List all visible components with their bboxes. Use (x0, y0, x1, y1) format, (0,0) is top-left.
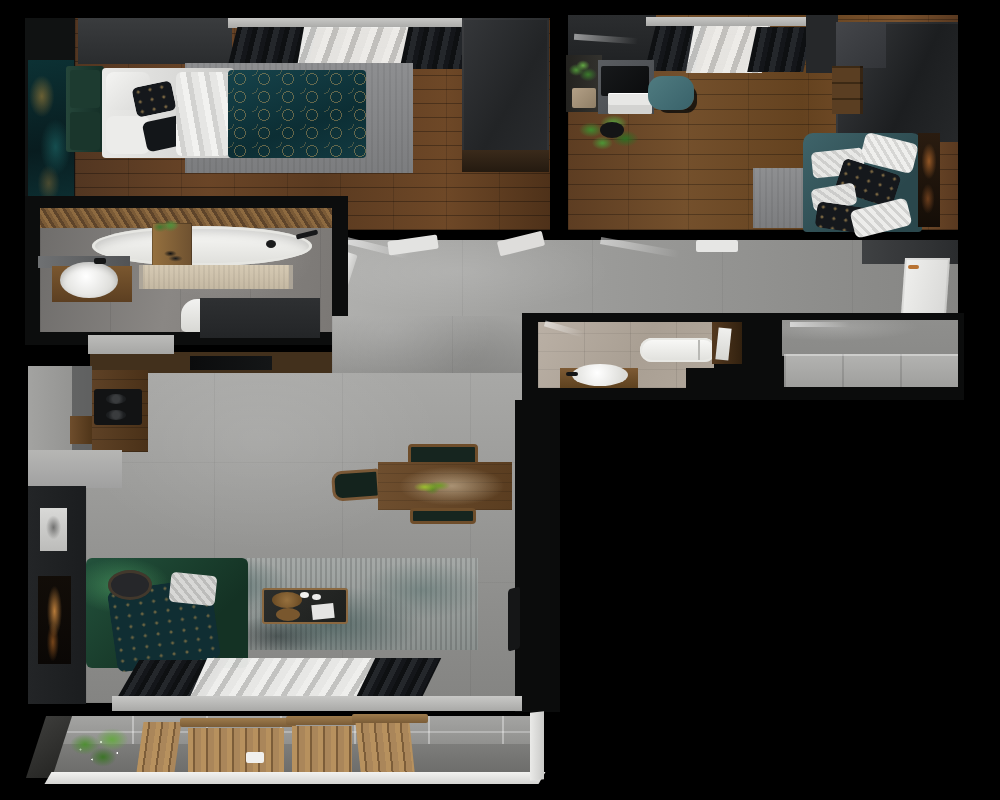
coffee-table-tray-2 (276, 608, 300, 621)
kitchen-slab-top (88, 335, 174, 354)
bedroom-wardrobe (462, 18, 549, 172)
bed-headboard-cushion (70, 70, 100, 108)
office-storage-box (572, 88, 596, 108)
office-curtain-right (747, 27, 813, 72)
office-right-wall (806, 15, 838, 73)
living-sheer-curtain (189, 658, 378, 700)
office-plant-pot (600, 122, 624, 138)
coffee-table-tray-1 (272, 592, 302, 608)
dining-chair-left (331, 468, 381, 501)
living-right-wall-object (508, 586, 520, 651)
office-wall-art-copper (918, 133, 940, 227)
bed-folded-duvet (176, 72, 230, 156)
balcony-table (188, 728, 284, 772)
sofa-pillow-light (169, 572, 218, 607)
office-wardrobe-panel (836, 22, 886, 68)
balcony-railing (45, 772, 546, 784)
bath-caddy-items (160, 248, 186, 262)
coffee-table-cups (300, 592, 309, 598)
living-fireplace-art (38, 576, 71, 664)
balcony-railing-right (530, 711, 544, 780)
entry-door-handle (908, 265, 919, 269)
balcony-chair-left (136, 722, 181, 772)
living-window-sill (112, 696, 522, 711)
living-wall-art-white (40, 508, 67, 551)
bathroom-2-dark-corner (686, 368, 716, 388)
kitchen-burner-1 (106, 394, 126, 404)
vanity-sink (60, 262, 118, 298)
kitchen-wood-shelf (70, 416, 92, 444)
tv-screen (190, 356, 272, 370)
coffee-table-book (311, 603, 334, 620)
dining-table-plant (408, 474, 456, 500)
bathroom-runner-rug (143, 265, 289, 289)
balcony-chair-right-top (352, 714, 428, 723)
storage-cabinets (784, 354, 958, 387)
bedroom-top-wall (78, 18, 232, 64)
balcony-table-top (180, 718, 296, 727)
kitchen-burner-2 (106, 410, 126, 420)
balcony-chair-mid (292, 726, 352, 772)
office-drawer-chest (832, 66, 863, 114)
office-door-threshold (696, 240, 738, 252)
vanity-faucet (94, 258, 106, 264)
balcony-plants (58, 722, 148, 772)
bed-teal-duvet (228, 70, 366, 158)
balcony-chair-right (355, 722, 414, 772)
office-shelf-plant (566, 58, 600, 88)
floor-plan-canvas (0, 0, 1000, 800)
bathtub-drain (266, 240, 276, 248)
media-wall-upper (200, 298, 320, 338)
office-laptop (601, 66, 649, 96)
bathroom-2-sink (572, 364, 628, 386)
office-chair (648, 76, 694, 110)
kitchen-slab-bottom (28, 450, 122, 488)
floor-lamp-shade (108, 570, 152, 600)
dining-chair-bottom (410, 508, 476, 524)
bathroom-2-faucet (566, 372, 578, 376)
balcony-cup (246, 752, 264, 763)
storage-light (790, 322, 850, 327)
bedroom-wardrobe-base (462, 150, 549, 172)
bathtub-2-divider (698, 340, 700, 360)
living-floor-upper (332, 316, 522, 378)
office-window-sill (646, 17, 808, 26)
bathtub-2 (640, 338, 716, 362)
living-right-wall (515, 400, 560, 712)
office-rug (753, 168, 807, 228)
bath-caddy-plant (146, 216, 186, 238)
